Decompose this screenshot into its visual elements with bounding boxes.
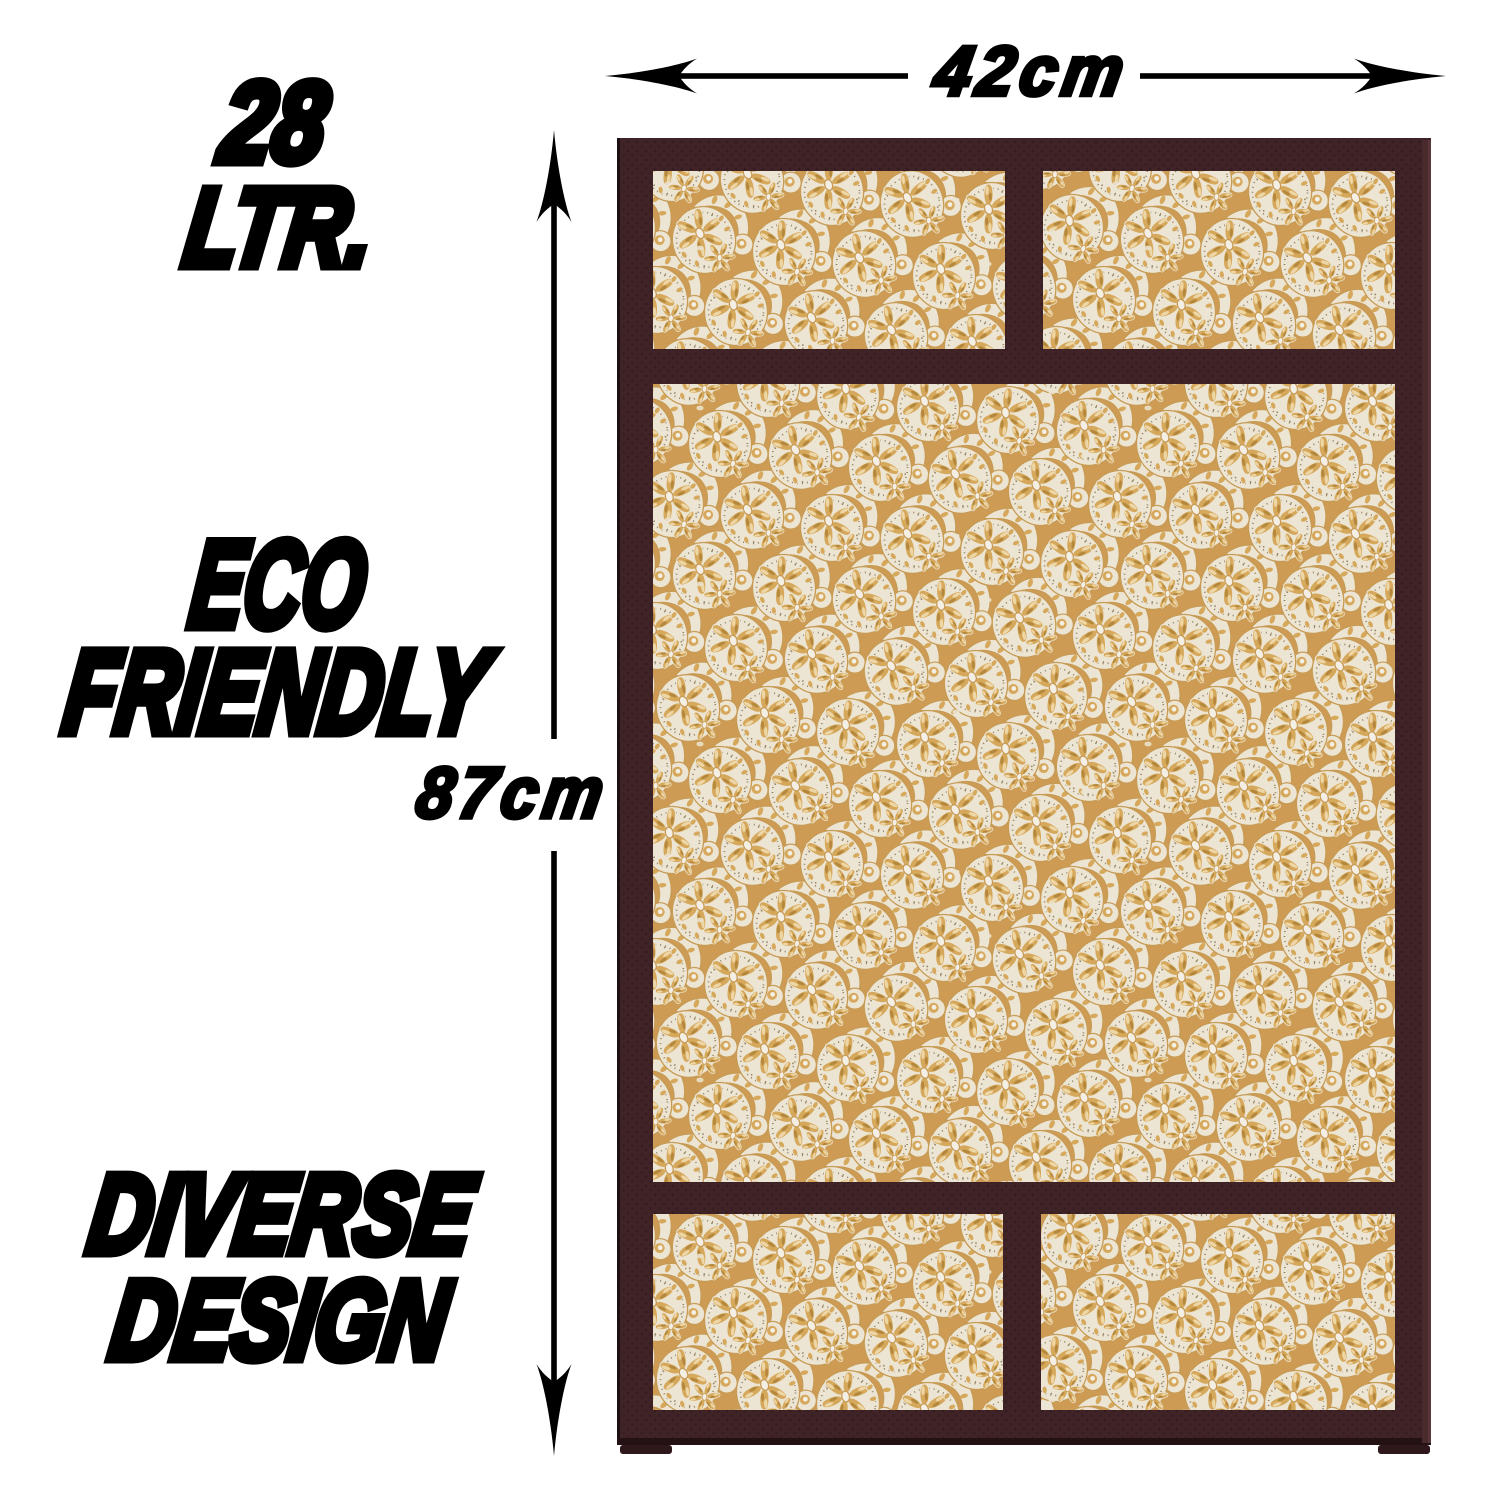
svg-text:42cm: 42cm (927, 32, 1135, 110)
svg-text:LTR.: LTR. (178, 166, 382, 290)
svg-text:87cm: 87cm (411, 752, 615, 833)
svg-text:FRIENDLY: FRIENDLY (57, 625, 501, 757)
svg-text:DESIGN: DESIGN (104, 1259, 458, 1383)
